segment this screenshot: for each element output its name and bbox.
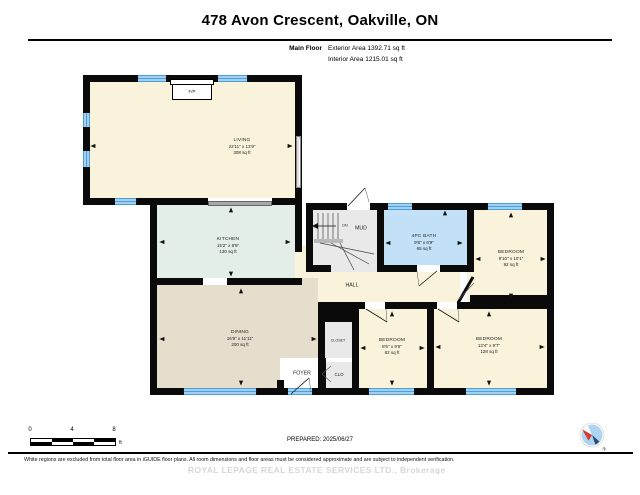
dimension-arrow xyxy=(509,294,513,299)
plan-line xyxy=(419,271,437,286)
dimension-arrow xyxy=(390,311,394,316)
plan-line xyxy=(458,309,459,322)
brokerage-watermark: ROYAL LEPAGE REAL ESTATE SERVICES LTD., … xyxy=(188,465,446,475)
dimension-arrow xyxy=(487,311,491,316)
plan-linework xyxy=(0,0,640,420)
stair-direction-arrow xyxy=(312,223,318,229)
room-label-bedroom-mid: BEDROOM 8'6" x 9'6" 82 sq ft xyxy=(379,338,405,356)
stair-landing xyxy=(314,239,343,243)
plan-line xyxy=(386,309,387,322)
dimension-arrow xyxy=(458,241,463,245)
floor-plan: F/P LIVING 22'11" x 13'9" 308 sq ft KITC… xyxy=(0,0,640,420)
svg-text:N: N xyxy=(601,446,607,452)
room-label-kitchen: KITCHEN 15'2" x 8'9" 130 sq ft xyxy=(217,237,239,255)
scale-tick-8: 8 xyxy=(109,427,119,433)
dimension-arrow xyxy=(229,272,233,277)
scale-unit: ft xyxy=(119,440,122,446)
plan-line xyxy=(309,378,311,392)
scale-tick-4: 4 xyxy=(67,427,77,433)
dimension-arrow xyxy=(385,241,390,245)
plan-line xyxy=(291,378,309,394)
stairs-dn-label: DN xyxy=(342,224,347,229)
dimension-arrow xyxy=(475,257,480,261)
room-label-clo: CLO xyxy=(334,372,343,378)
dimension-arrow xyxy=(360,346,365,350)
room-label-dining: DINING 16'9" x 11'11" 200 sq ft xyxy=(227,330,254,348)
scale-tick-0: 0 xyxy=(25,427,35,433)
plan-line xyxy=(417,271,419,286)
room-label-mud: MUD xyxy=(355,226,367,233)
room-label-closet: CLOSET xyxy=(331,339,345,344)
plan-line xyxy=(340,243,354,270)
dimension-arrow xyxy=(229,207,233,212)
room-label-bedroom-bottom: BEDROOM 13'4" x 9'7" 128 sq ft xyxy=(476,337,502,355)
dimension-arrow xyxy=(90,144,95,148)
prepared-date: PREPARED: 2025/06/27 xyxy=(287,437,353,443)
dimension-arrow xyxy=(286,240,291,244)
plan-line xyxy=(331,243,369,264)
room-label-bedroom-right: BEDROOM 9'10" x 10'1" 92 sq ft xyxy=(498,250,524,268)
dimension-arrow xyxy=(159,337,164,341)
dimension-arrow xyxy=(312,337,317,341)
plan-line xyxy=(348,188,365,206)
plan-line xyxy=(365,188,369,202)
disclaimer-text: White regions are excluded from total fl… xyxy=(24,457,454,463)
footer-divider xyxy=(8,452,633,454)
dimension-arrow xyxy=(420,346,425,350)
plan-line xyxy=(458,277,473,303)
room-label-hall: HALL xyxy=(346,283,359,290)
dimension-arrow xyxy=(159,240,164,244)
plan-line xyxy=(320,243,374,254)
dimension-arrow xyxy=(509,212,513,217)
dimension-arrow xyxy=(435,345,440,349)
dimension-arrow xyxy=(541,257,546,261)
plan-line xyxy=(438,309,459,322)
plan-line xyxy=(366,309,387,322)
dimension-arrow xyxy=(288,144,293,148)
dimension-arrow xyxy=(443,210,447,215)
dimension-arrow xyxy=(540,345,545,349)
dimension-arrow xyxy=(390,381,394,386)
room-label-foyer: FOYER xyxy=(293,371,311,378)
room-label-living: LIVING 22'11" x 13'9" 308 sq ft xyxy=(229,138,256,156)
scale-bar xyxy=(30,438,116,446)
floorplan-page: 478 Avon Crescent, Oakville, ON Main Flo… xyxy=(0,0,640,495)
dimension-arrow xyxy=(239,381,243,386)
dimension-arrow xyxy=(487,381,491,386)
clo-door-swing xyxy=(322,366,331,382)
compass-north-icon: N xyxy=(578,422,608,452)
dimension-arrow xyxy=(239,288,243,293)
room-label-bath: 4PC BATH 9'8" x 6'9" 65 sq ft xyxy=(412,234,437,252)
